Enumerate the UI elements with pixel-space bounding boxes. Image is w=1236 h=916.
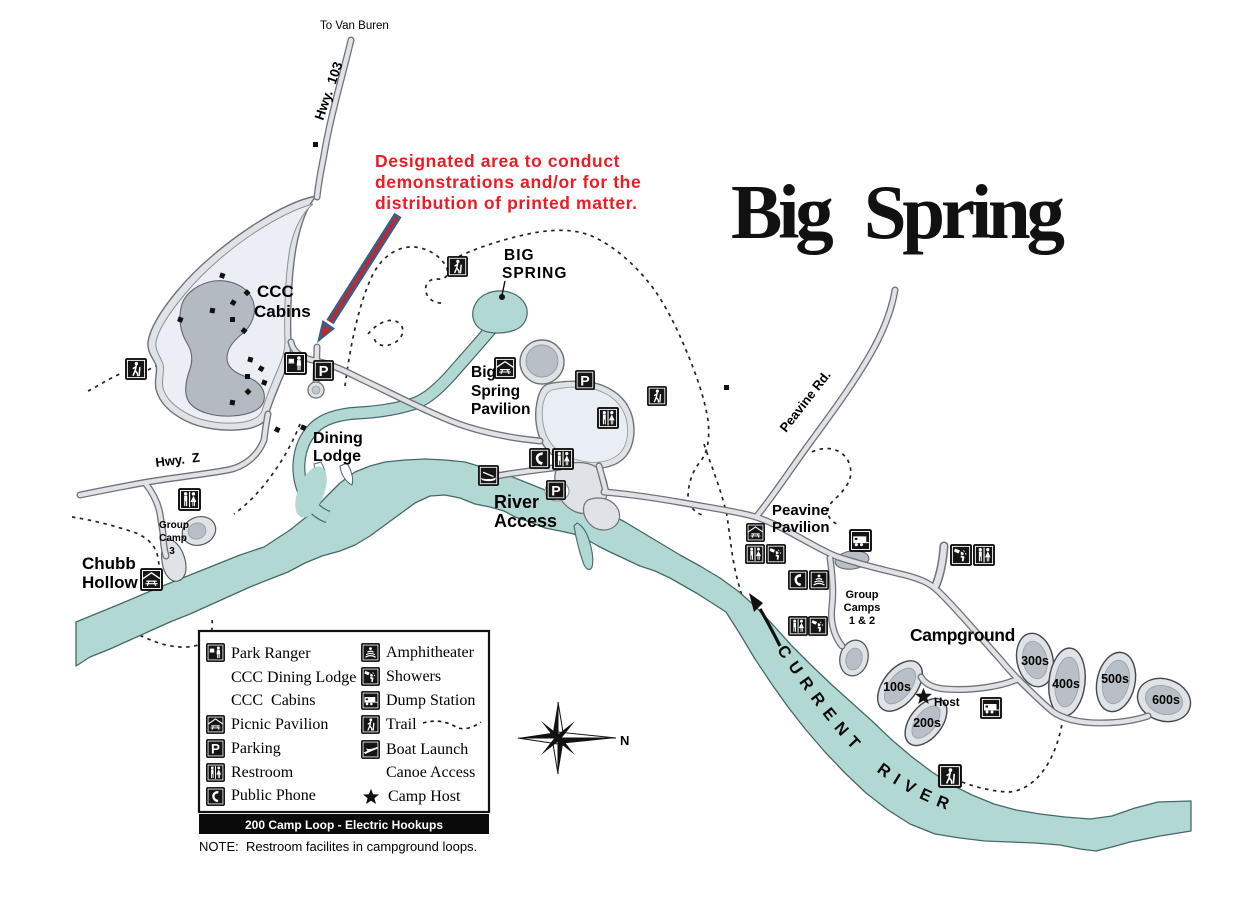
svg-text:Public Phone: Public Phone — [231, 787, 316, 804]
svg-text:1 & 2: 1 & 2 — [849, 615, 875, 627]
svg-text:Cabins: Cabins — [254, 302, 311, 321]
svg-text:Camps: Camps — [844, 602, 881, 614]
svg-text:SPRING: SPRING — [502, 265, 567, 282]
svg-text:Spring: Spring — [471, 383, 520, 400]
svg-text:400s: 400s — [1052, 677, 1080, 691]
svg-text:Access: Access — [494, 511, 557, 531]
svg-text:200s: 200s — [913, 716, 941, 730]
svg-text:3: 3 — [169, 546, 175, 557]
svg-text:Designated area to conduct: Designated area to conduct — [375, 151, 620, 171]
svg-text:Hollow: Hollow — [82, 573, 138, 592]
svg-text:demonstrations and/or for the: demonstrations and/or for the — [375, 172, 641, 192]
svg-text:Showers: Showers — [386, 668, 441, 685]
svg-text:BIG: BIG — [504, 247, 535, 264]
svg-text:Canoe Access: Canoe Access — [386, 764, 475, 781]
svg-text:Trail: Trail — [386, 716, 417, 733]
svg-text:500s: 500s — [1101, 672, 1129, 686]
svg-text:N: N — [620, 733, 629, 748]
svg-text:Lodge: Lodge — [313, 448, 361, 465]
svg-text:Pavilion: Pavilion — [471, 401, 530, 418]
svg-text:Big Spring: Big Spring — [731, 169, 1065, 255]
svg-text:Picnic Pavilion: Picnic Pavilion — [231, 716, 328, 733]
svg-text:Host: Host — [934, 697, 960, 709]
svg-text:CCC: CCC — [257, 282, 294, 301]
svg-text:Restroom: Restroom — [231, 764, 294, 781]
svg-text:Group: Group — [846, 589, 879, 601]
svg-text:300s: 300s — [1021, 654, 1049, 668]
svg-text:CCC Cabins: CCC Cabins — [231, 692, 315, 709]
svg-text:Peavine: Peavine — [772, 502, 829, 519]
svg-text:CCC Dining Lodge: CCC Dining Lodge — [231, 669, 356, 686]
svg-text:Parking: Parking — [231, 740, 281, 757]
svg-text:Dump Station: Dump Station — [386, 692, 475, 709]
svg-text:100s: 100s — [883, 680, 911, 694]
svg-text:NOTE: Restroom facilites in c: NOTE: Restroom facilites in campground l… — [199, 839, 477, 854]
svg-text:Campground: Campground — [910, 625, 1015, 645]
svg-text:To Van Buren: To Van Buren — [320, 20, 389, 32]
svg-text:Big: Big — [471, 364, 496, 381]
svg-text:distribution of printed matter: distribution of printed matter. — [375, 193, 638, 213]
svg-text:Boat Launch: Boat Launch — [386, 741, 468, 758]
svg-text:600s: 600s — [1152, 693, 1180, 707]
svg-text:200 Camp Loop - Electric Hooku: 200 Camp Loop - Electric Hookups — [245, 818, 443, 832]
svg-text:Pavilion: Pavilion — [772, 519, 830, 536]
svg-text:Park Ranger: Park Ranger — [231, 645, 311, 662]
svg-text:Amphitheater: Amphitheater — [386, 644, 475, 661]
svg-text:Camp: Camp — [159, 533, 187, 544]
svg-text:Dining: Dining — [313, 430, 363, 447]
svg-text:Camp Host: Camp Host — [388, 788, 461, 805]
svg-text:River: River — [494, 492, 539, 512]
svg-text:Group: Group — [159, 520, 189, 531]
svg-text:Chubb: Chubb — [82, 554, 136, 573]
